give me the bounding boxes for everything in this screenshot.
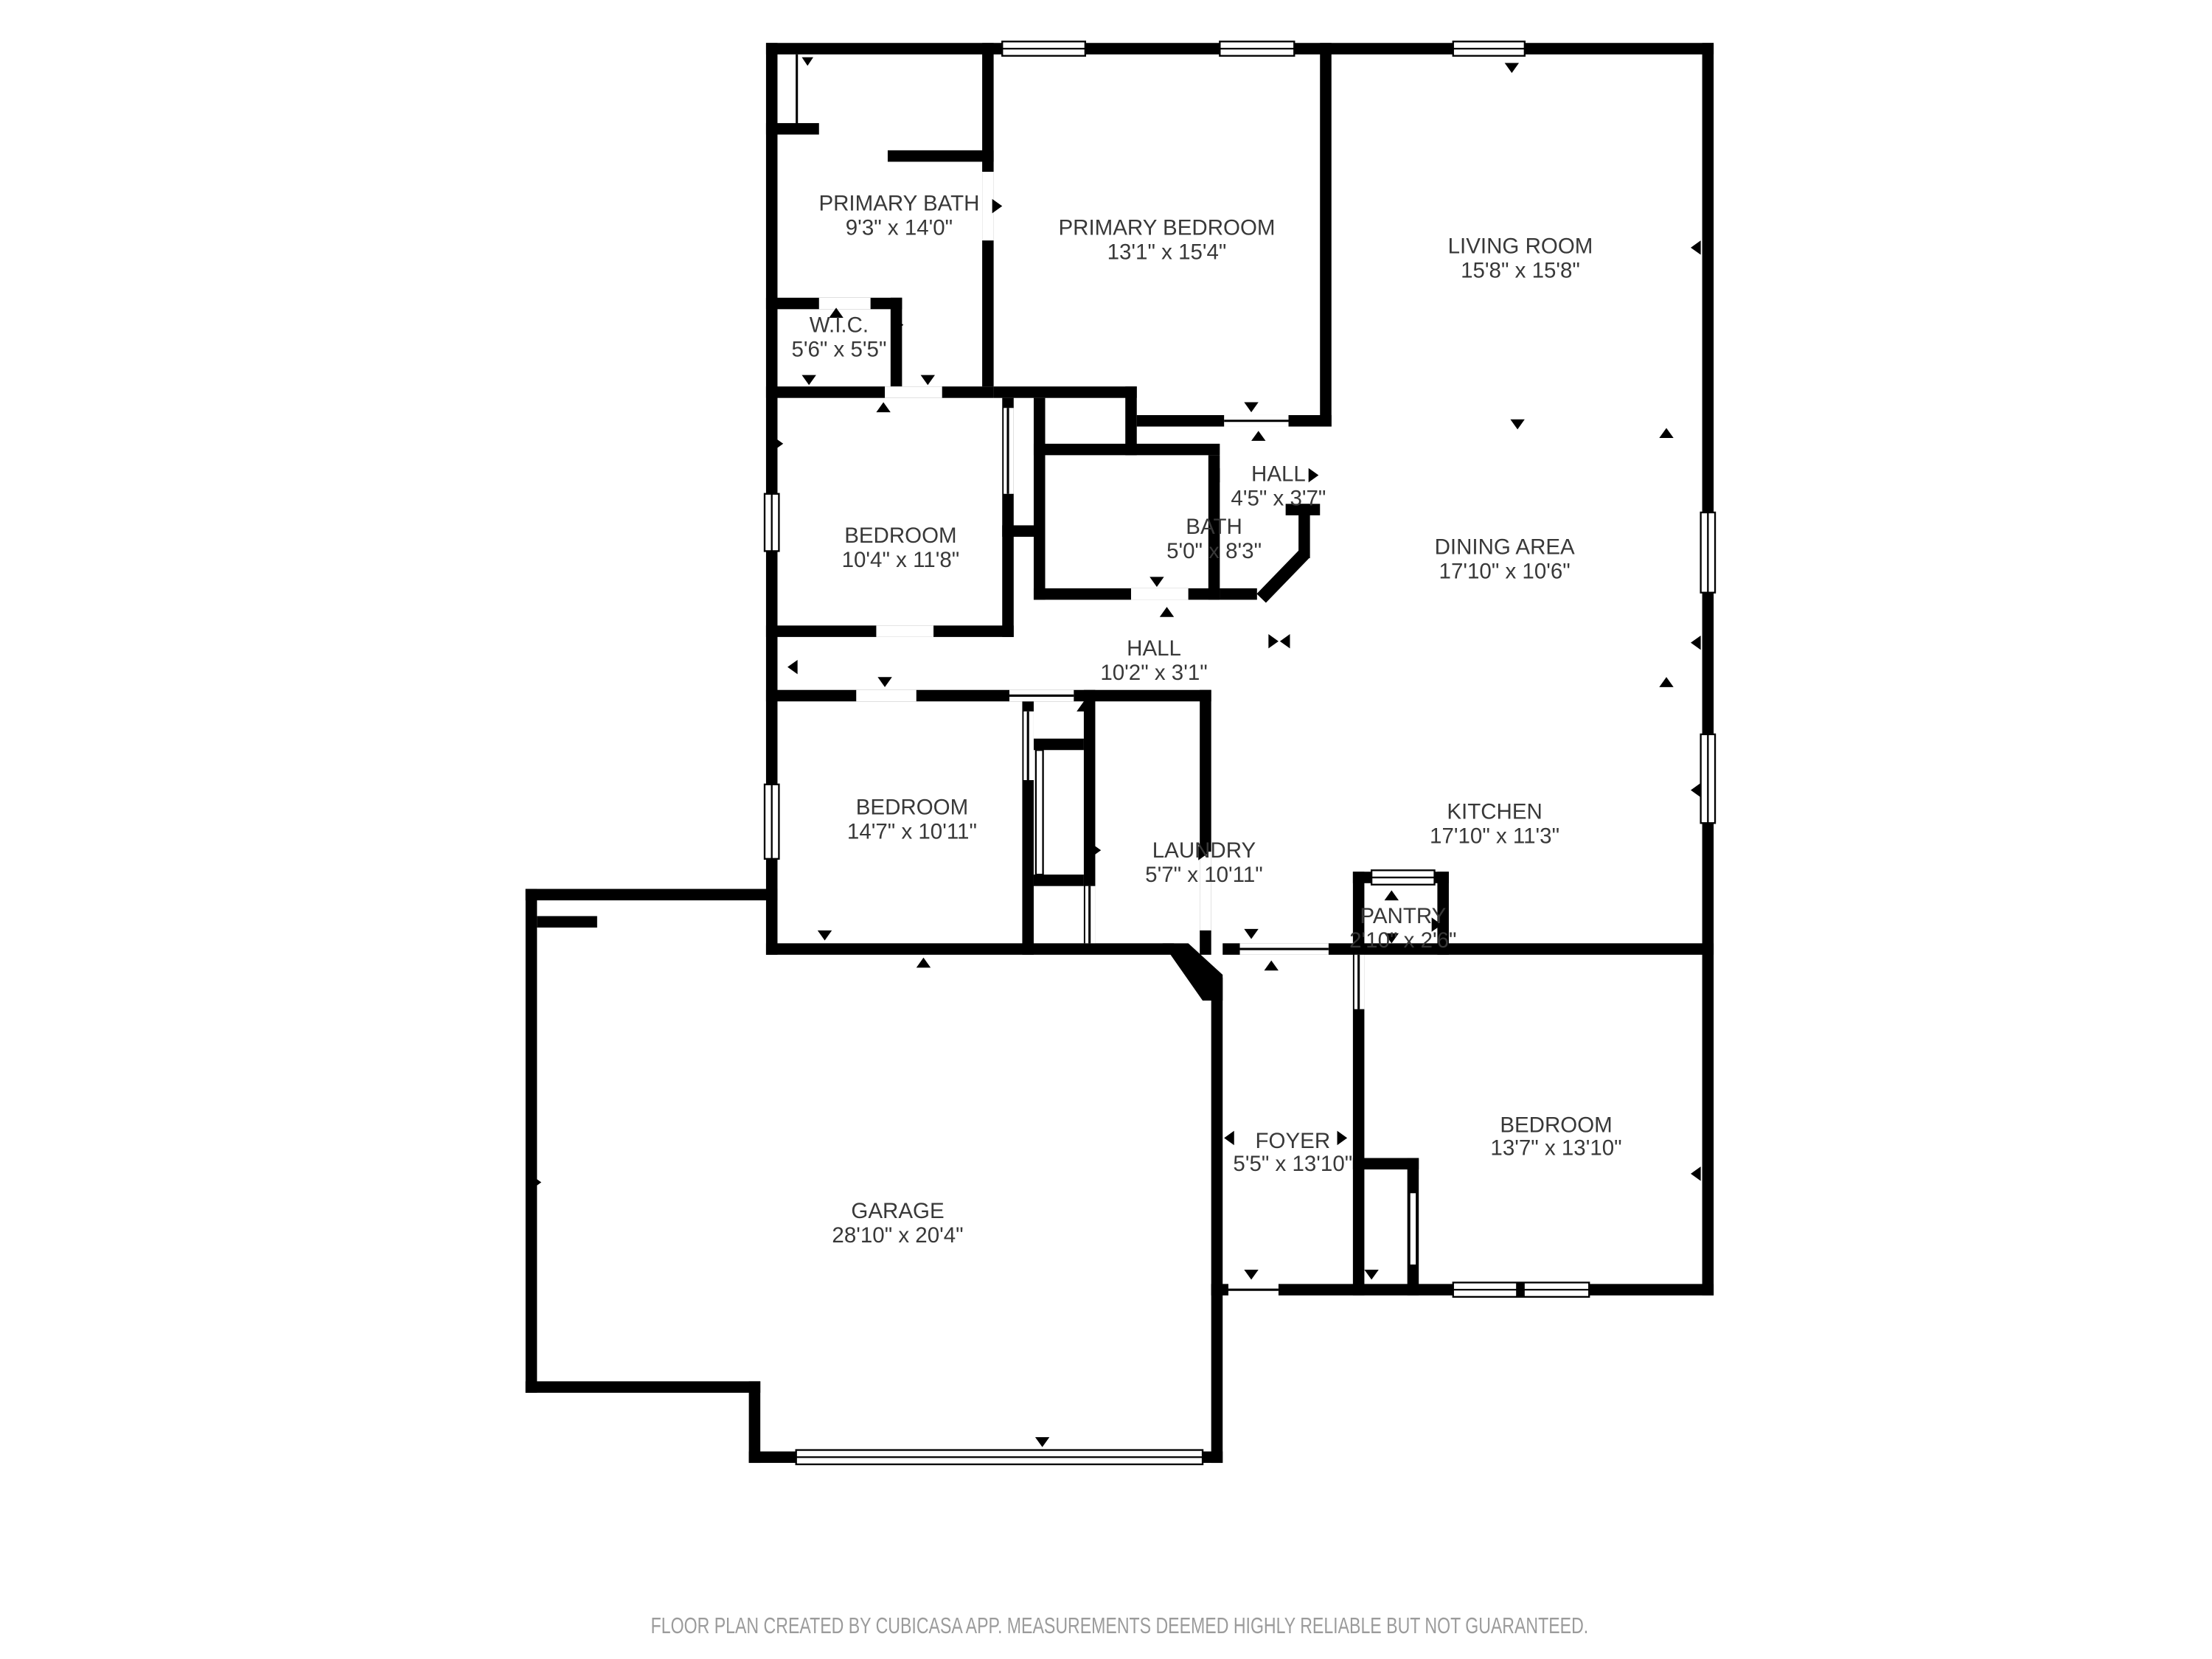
window	[765, 785, 779, 859]
room-label-bath: BATH	[1186, 515, 1242, 539]
room-dims-pantry: 2'10" x 2'6"	[1349, 928, 1456, 953]
room-dims-wic: 5'6" x 5'5"	[791, 337, 886, 361]
garage-door	[796, 1450, 1203, 1464]
room-label-living-room: LIVING ROOM	[1448, 234, 1593, 259]
room-label-foyer: FOYER	[1256, 1129, 1331, 1153]
diagonal-wall	[1262, 554, 1304, 598]
room-dims-kitchen: 17'10" x 11'3"	[1430, 824, 1559, 848]
double-window	[1453, 1282, 1589, 1296]
window	[765, 494, 779, 552]
window	[1701, 734, 1715, 823]
room-dims-bedroom-left: 10'4" x 11'8"	[842, 548, 960, 572]
window	[1701, 512, 1715, 593]
room-dims-primary-bath: 9'3" x 14'0"	[846, 215, 953, 240]
room-dims-bedroom-mid: 14'7" x 10'11"	[847, 820, 977, 844]
room-label-dining-area: DINING AREA	[1435, 535, 1575, 559]
room-dims-laundry: 5'7" x 10'11"	[1145, 863, 1263, 887]
room-label-kitchen: KITCHEN	[1447, 799, 1542, 824]
room-label-laundry: LAUNDRY	[1152, 838, 1256, 863]
room-label-bedroom-right: BEDROOM	[1500, 1113, 1612, 1138]
room-dims-hall-lower: 10'2" x 3'1"	[1100, 661, 1207, 685]
room-label-garage: GARAGE	[851, 1199, 944, 1223]
room-label-bedroom-mid: BEDROOM	[856, 796, 968, 820]
floor-plan-canvas: PRIMARY BATH 9'3" x 14'0" PRIMARY BEDROO…	[0, 0, 2212, 1659]
room-dims-hall-upper: 4'5" x 3'7"	[1231, 486, 1326, 510]
room-label-wic: W.I.C.	[810, 313, 869, 337]
room-dims-bedroom-right: 13'7" x 13'10"	[1490, 1136, 1621, 1161]
room-dims-foyer: 5'5" x 13'10"	[1233, 1152, 1352, 1176]
room-label-primary-bedroom: PRIMARY BEDROOM	[1059, 215, 1276, 240]
window	[1453, 41, 1525, 55]
window	[1002, 41, 1085, 55]
room-label-primary-bath: PRIMARY BATH	[818, 191, 979, 215]
room-dims-garage: 28'10" x 20'4"	[832, 1223, 963, 1248]
room-label-hall-lower: HALL	[1127, 636, 1181, 661]
room-label-hall-upper: HALL	[1251, 462, 1306, 486]
room-dims-primary-bedroom: 13'1" x 15'4"	[1107, 240, 1227, 264]
room-label-pantry: PANTRY	[1360, 904, 1446, 928]
room-dims-dining-area: 17'10" x 10'6"	[1439, 559, 1571, 583]
window	[1220, 41, 1294, 55]
floor-plan-svg: PRIMARY BATH 9'3" x 14'0" PRIMARY BEDROO…	[0, 0, 2212, 1659]
room-dims-living-room: 15'8" x 15'8"	[1461, 259, 1580, 283]
window	[1371, 870, 1434, 884]
room-label-bedroom-left: BEDROOM	[844, 524, 956, 548]
room-dims-bath: 5'0" x 8'3"	[1166, 539, 1262, 563]
footer-disclaimer: FLOOR PLAN CREATED BY CUBICASA APP. MEAS…	[651, 1614, 1589, 1638]
